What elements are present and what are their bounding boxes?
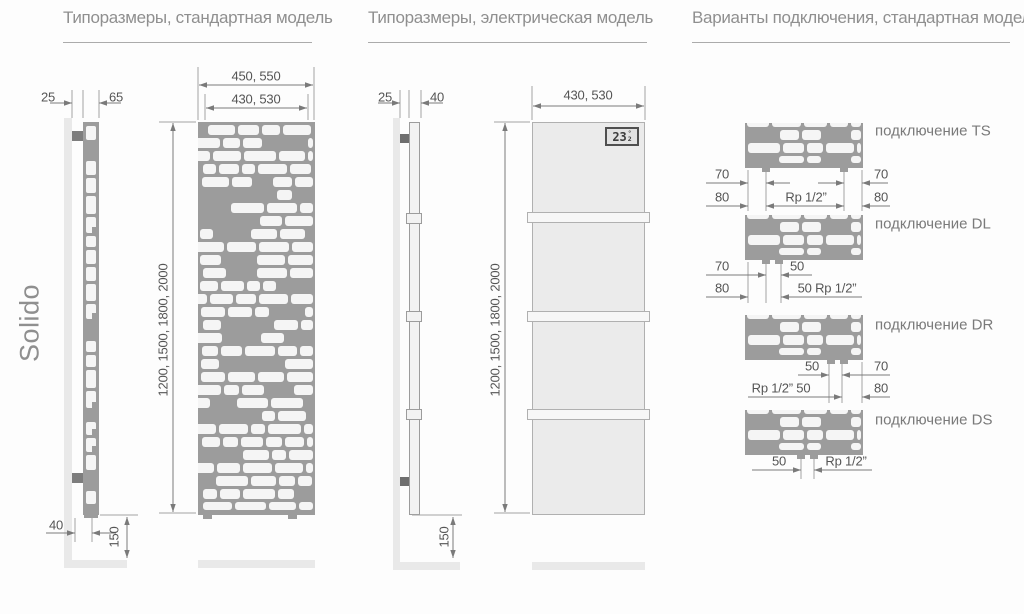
pipe-stub [827,360,835,364]
dim-label: 1200, 1500, 1800, 2000 [488,264,503,397]
dim-label: 70 [874,167,888,182]
dim-label: Rp 1/2” [825,454,866,469]
dim-label: 65 [109,90,123,105]
pipe-stub [84,515,98,518]
dim-label: 80 [715,190,729,205]
dim-label: 25 [378,90,392,105]
dimension-lines-overlay [0,0,1024,614]
dim-label: 50 [772,454,786,469]
pipe-stub [762,168,770,172]
dim-label: 70 [715,259,729,274]
pipe-stub [203,515,212,519]
dim-label: 50 [790,259,804,274]
connection-label: подключение TS [875,123,991,140]
radiator-spec-diagram: Типоразмеры, стандартная модель Типоразм… [0,0,1024,614]
dim-label: 40 [49,518,63,533]
pipe-stub [288,515,297,519]
connection-label: подключение DR [875,317,993,334]
dim-label: 70 [874,359,888,374]
dim-label: 80 [874,190,888,205]
connection-label: подключение DS [875,412,992,429]
dim-label: 25 [41,90,55,105]
dim-label: 50 Rp 1/2” [798,281,857,296]
dim-label: Rp 1/2” [785,190,826,205]
pipe-stub [775,260,783,264]
dim-label: 80 [874,381,888,396]
dim-label: 430, 530 [231,92,280,107]
pipe-stub [762,260,770,264]
dim-label: 1200, 1500, 1800, 2000 [156,264,171,397]
pipe-stub [840,168,848,172]
dim-label: 70 [715,167,729,182]
dim-label: 80 [715,281,729,296]
pipe-stub [797,455,805,459]
pipe-stub [840,360,848,364]
dim-label: 150 [107,526,122,547]
dim-label: 40 [430,90,444,105]
dim-label: 150 [437,526,452,547]
connection-label: подключение DL [875,216,991,233]
dim-label: 430, 530 [563,88,612,103]
dim-label: 450, 550 [231,69,280,84]
pipe-stub [810,455,818,459]
dim-label: 50 [805,359,819,374]
dim-label: Rp 1/2” 50 [752,381,811,396]
